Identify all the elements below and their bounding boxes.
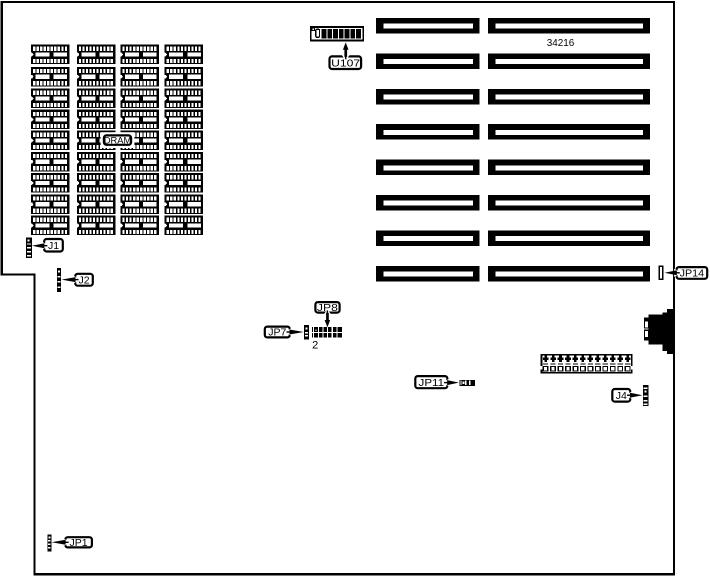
svg-text:JP7: JP7 xyxy=(268,327,286,339)
svg-text:34216: 34216 xyxy=(547,37,575,49)
svg-text:JP11: JP11 xyxy=(419,377,445,389)
svg-text:DRAM: DRAM xyxy=(104,135,131,145)
svg-text:J4: J4 xyxy=(616,390,627,402)
svg-text:JP1: JP1 xyxy=(70,537,88,549)
svg-text:2: 2 xyxy=(312,339,318,351)
svg-text:JP8: JP8 xyxy=(317,302,338,314)
svg-text:JP14: JP14 xyxy=(680,268,705,280)
svg-text:J1: J1 xyxy=(48,240,59,252)
svg-text:J2: J2 xyxy=(78,274,89,286)
svg-text:U107: U107 xyxy=(331,57,360,69)
